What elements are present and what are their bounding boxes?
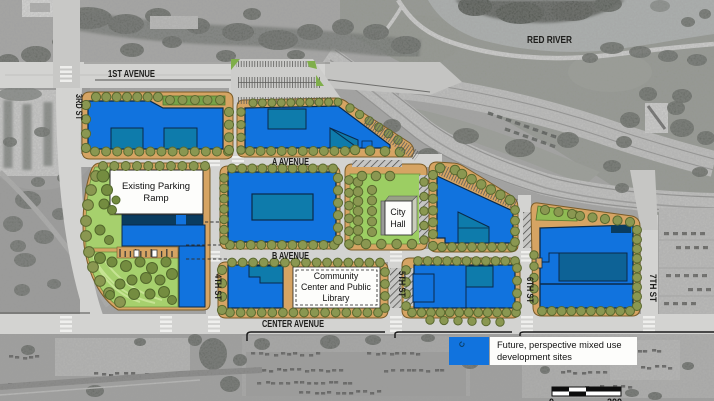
svg-text:6TH ST: 6TH ST: [524, 277, 535, 303]
svg-text:1ST AVENUE: 1ST AVENUE: [108, 68, 155, 80]
svg-text:RED RIVER: RED RIVER: [527, 35, 573, 46]
svg-text:4TH ST: 4TH ST: [212, 274, 223, 300]
svg-text:Future, perspective mixed use: Future, perspective mixed use: [497, 340, 622, 350]
svg-text:0: 0: [549, 397, 554, 401]
svg-text:Center and Public: Center and Public: [301, 282, 372, 292]
svg-text:development sites: development sites: [497, 352, 572, 362]
svg-text:CENTER AVENUE: CENTER AVENUE: [262, 318, 324, 330]
svg-text:Existing Parking: Existing Parking: [122, 181, 190, 192]
svg-text:Hall: Hall: [390, 219, 405, 229]
svg-text:Library: Library: [323, 293, 350, 303]
svg-text:City: City: [390, 207, 406, 217]
svg-text:B AVENUE: B AVENUE: [272, 251, 309, 262]
svg-text:Community: Community: [314, 271, 359, 281]
svg-text:3RD ST: 3RD ST: [73, 94, 84, 120]
svg-text:7TH ST: 7TH ST: [647, 274, 658, 302]
svg-text:200: 200: [607, 397, 622, 401]
svg-text:5TH ST: 5TH ST: [396, 271, 407, 297]
svg-text:A AVENUE: A AVENUE: [272, 157, 309, 168]
svg-text:Ramp: Ramp: [143, 193, 168, 204]
